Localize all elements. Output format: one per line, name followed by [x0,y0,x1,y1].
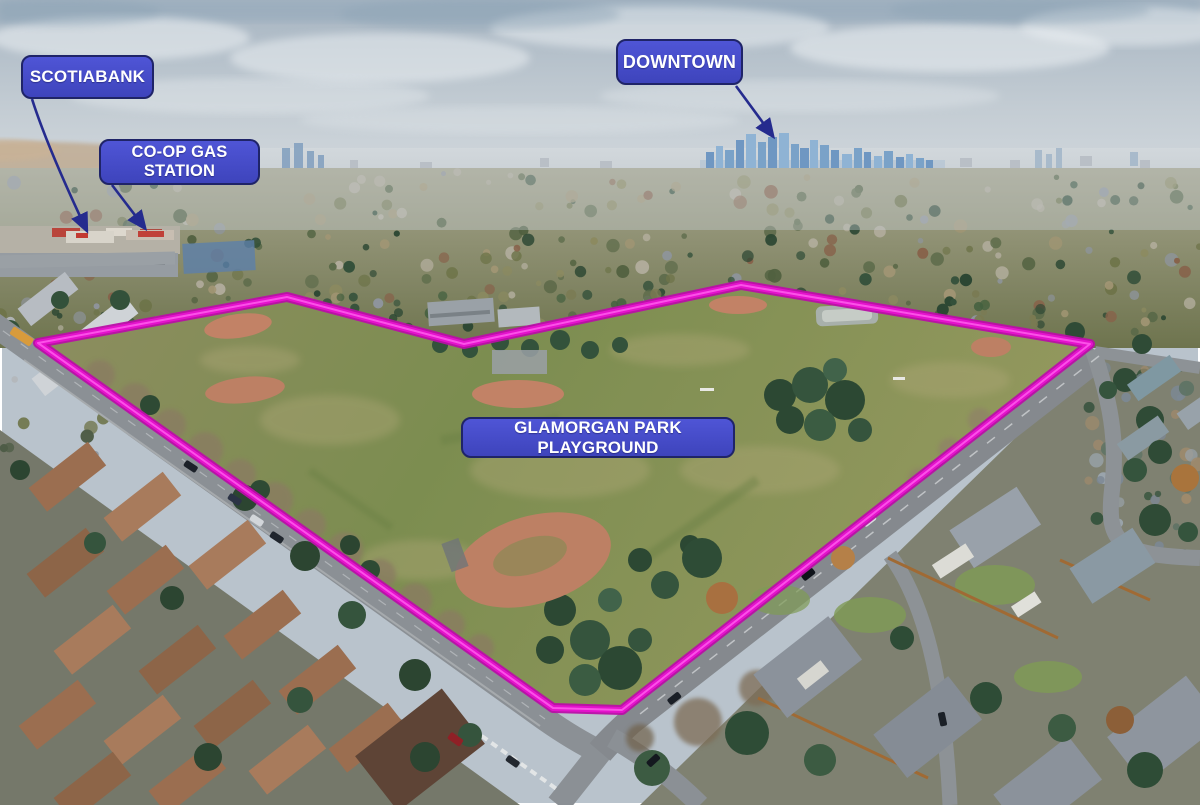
baseball-diamond-4 [709,296,767,314]
annotated-aerial-photo: SCOTIABANK CO-OP GAS STATION DOWNTOWN GL… [0,0,1200,805]
scotiabank-building [66,231,114,243]
blue-roof-building [182,240,255,274]
soccer-goal-2 [893,377,905,380]
baseball-diamond-3 [472,380,564,408]
label-scotiabank: SCOTIABANK [21,55,154,99]
soccer-goal [700,388,714,391]
baseball-diamond-5 [971,337,1011,357]
label-coop-gas-station: CO-OP GAS STATION [99,139,260,185]
backstop [492,350,547,374]
label-glamorgan-park-playground: GLAMORGAN PARK PLAYGROUND [461,417,735,458]
aerial-photo-scene [0,0,1200,805]
label-downtown: DOWNTOWN [616,39,743,85]
